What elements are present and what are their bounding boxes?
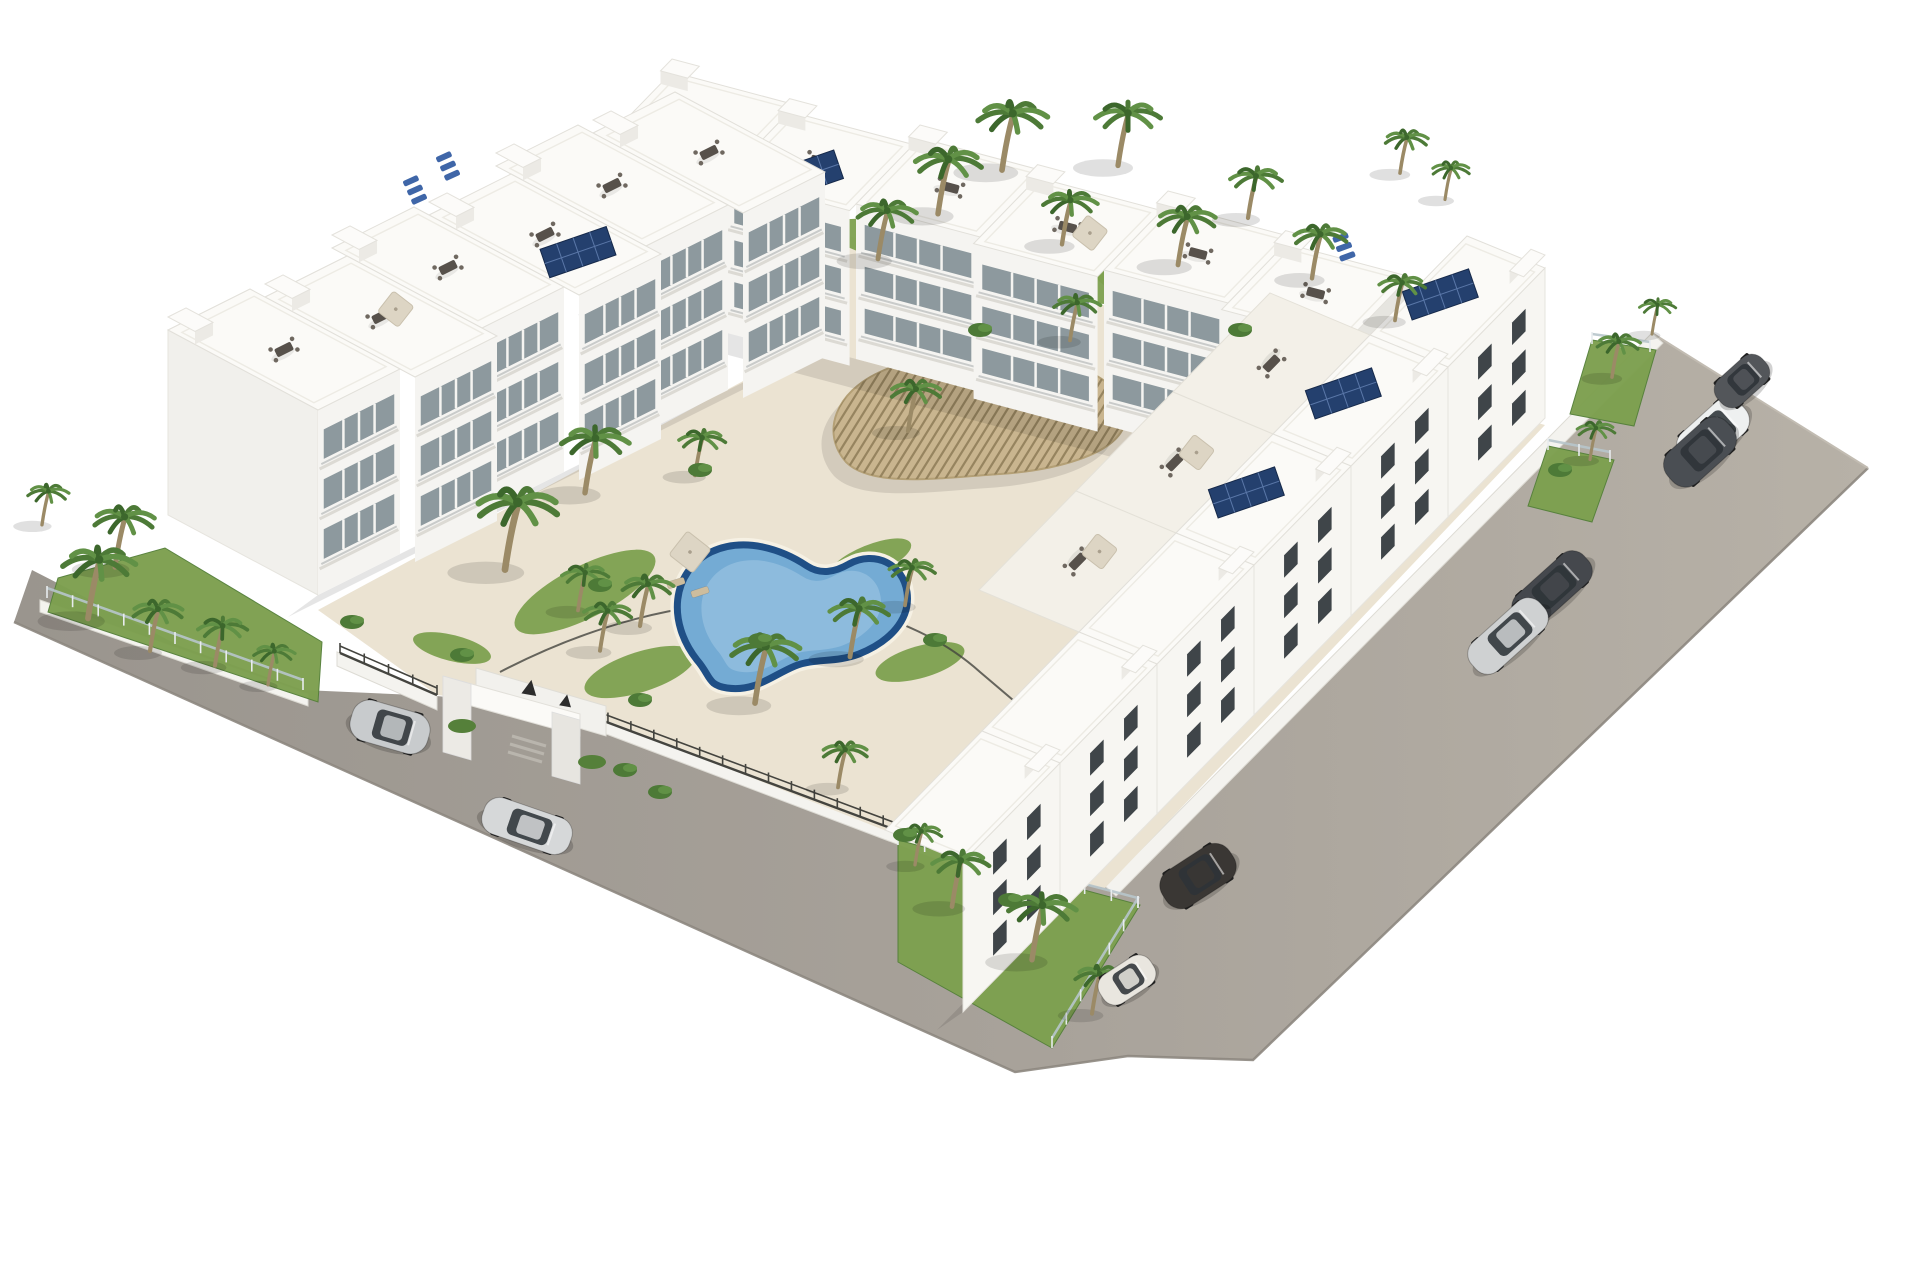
palm-crown [1067,197,1073,203]
portal-planter [578,755,606,769]
architectural-render [0,0,1920,1280]
palm-shadow [13,521,51,532]
palm-crown [1449,166,1454,171]
palm-tree [1212,167,1282,227]
palm-shadow [1581,373,1622,385]
palm-shadow [1369,169,1410,181]
portal-pillar [552,712,580,784]
palm-frond [1256,176,1273,188]
bush-highlight [623,764,637,772]
palm-crown [945,155,953,163]
palm-tree [1627,299,1676,341]
palm-tree [1073,102,1161,177]
palm-crown [645,581,651,587]
palm-shadow [1418,196,1454,207]
palm-crown [1253,173,1259,179]
palm-trunk [1400,139,1407,173]
palm-crown [1009,109,1017,117]
lounger-shape [1335,241,1352,252]
palm-shadow [706,696,771,715]
palm-shadow [1363,316,1406,329]
palm-shadow [181,661,227,674]
palm-shadow [1212,213,1260,227]
palm-crown [1124,109,1132,117]
portal-pillar [443,676,471,760]
lounger-shape [444,169,461,181]
bush-highlight [903,829,917,837]
palm-crown [46,489,51,494]
palm-crown [1317,231,1323,237]
lounger-shape [411,193,428,205]
palm-crown [700,435,705,440]
palm-shadow [806,783,849,796]
palm-shadow [447,562,524,584]
palm-crown [583,570,588,575]
palm-crown [884,207,891,214]
palm-crown [1656,303,1660,307]
palm-crown [1075,300,1080,305]
palm-crown [272,649,277,654]
bush-highlight [698,464,712,472]
bush-highlight [460,649,474,657]
palm-crown [1184,213,1191,220]
lounger-shape [406,184,423,196]
palm-crown [1039,901,1047,909]
lounger-shape [402,175,419,187]
bush-highlight [1558,464,1572,472]
site-plan-svg [0,0,1920,1280]
bush-highlight [658,786,672,794]
palm-shadow [985,953,1047,971]
bush-highlight [933,634,947,642]
palm-shadow [1073,159,1133,177]
palm-crown [919,829,924,834]
portal-planter [448,719,476,733]
palm-crown [856,605,863,612]
palm-shadow [604,621,652,635]
palm-crown [220,623,226,629]
palm-crown [513,498,523,508]
palm-shadow [1137,259,1192,275]
bush-highlight [1008,894,1022,902]
palm-frond [1128,113,1151,127]
palm-shadow [1058,1009,1104,1022]
palm-shadow [809,651,864,667]
bush-highlight [978,324,992,332]
bush-highlight [1238,324,1252,332]
bush-highlight [350,616,364,624]
bush-highlight [598,579,612,587]
palm-shadow [891,207,953,225]
palm-crown [95,555,103,563]
palm-tree [13,484,69,532]
palm-shadow [1274,273,1324,288]
palm-shadow [566,646,612,659]
rooftop-blue-loungers [435,151,460,181]
palm-crown [1594,426,1599,431]
palm-shadow [837,253,892,269]
lounger-shape [435,151,452,163]
palm-shadow [872,426,920,440]
palm-shadow [886,861,924,872]
bush-highlight [638,694,652,702]
bush-highlight [758,634,772,642]
palm-tree [1369,130,1428,181]
rooftop-blue-loungers [402,175,427,205]
palm-shadow [1024,239,1074,254]
lounger-shape [439,160,456,172]
palm-crown [605,608,611,614]
palm-crown [155,606,161,612]
palm-tree [1418,162,1469,206]
palm-crown [843,747,848,752]
palm-trunk [42,493,48,525]
palm-crown [1616,339,1621,344]
palm-crown [121,513,128,520]
palm-crown [1400,280,1405,285]
palm-crown [1404,135,1409,140]
palm-crown [592,434,600,442]
palm-shadow [114,646,162,660]
palm-crown [913,386,919,392]
palm-shadow [239,681,277,692]
palm-shadow [912,901,965,916]
palm-crown [910,565,915,570]
palm-frond [1658,305,1670,313]
palm-shadow [1038,336,1081,349]
palm-crown [958,857,965,864]
palm-shadow [38,611,105,631]
